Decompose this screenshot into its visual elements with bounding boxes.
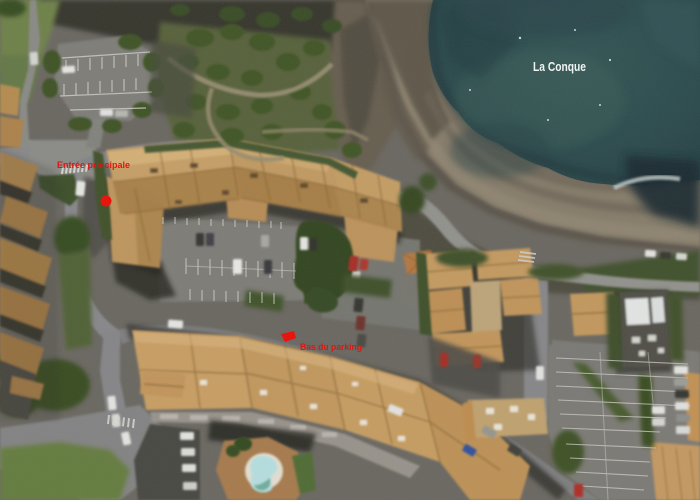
svg-text:La Conque: La Conque (533, 59, 586, 74)
svg-text:Entrée principale: Entrée principale (57, 160, 130, 171)
svg-text:Bas du parking: Bas du parking (300, 342, 362, 353)
